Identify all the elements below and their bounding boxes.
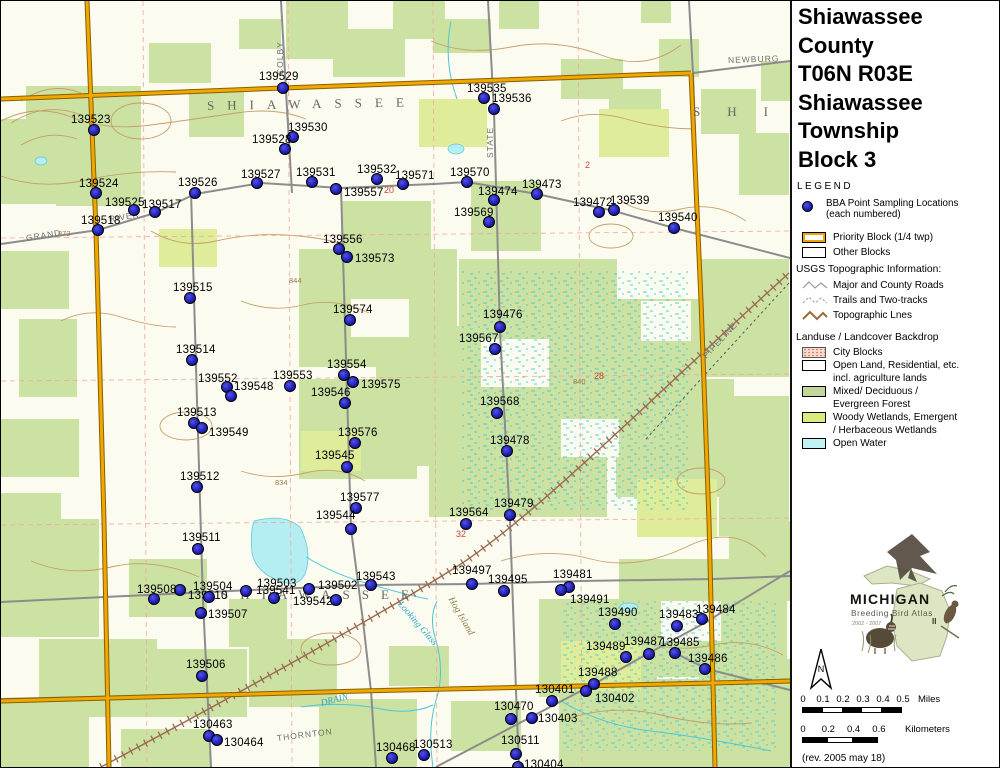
bba-point-dot bbox=[251, 177, 263, 189]
bba-point-label: 139507 bbox=[208, 609, 248, 621]
legend-item-water: Open Water bbox=[802, 437, 1000, 450]
bba-point-dot bbox=[192, 543, 204, 555]
logo-subtitle: Breeding Bird Atlas bbox=[851, 608, 933, 618]
bba-point-dot bbox=[330, 183, 342, 195]
other-block-swatch bbox=[802, 247, 826, 258]
bba-point-dot bbox=[699, 663, 711, 675]
north-arrow-icon: N bbox=[808, 645, 838, 695]
bba-point-dot bbox=[277, 82, 289, 94]
bba-point-label: 139473 bbox=[522, 179, 562, 191]
bba-point-label: 139497 bbox=[452, 565, 492, 577]
scalebar-segment bbox=[852, 738, 877, 742]
legend-block-items: Priority Block (1/4 twp)Other Blocks bbox=[802, 230, 1000, 260]
forest-swatch bbox=[802, 386, 826, 397]
legend-landuse-header: Landuse / Landcover Backdrop bbox=[796, 332, 939, 343]
bba-point-label: 139481 bbox=[553, 569, 593, 581]
bba-point-dot bbox=[189, 187, 201, 199]
bba-point-label: 139557 bbox=[344, 187, 384, 199]
bba-point-dot bbox=[620, 651, 632, 663]
bba-point-dot bbox=[349, 437, 361, 449]
scalebar-segment bbox=[862, 708, 882, 712]
legend-item-topo-line: Topographic Lnes bbox=[802, 308, 1000, 323]
bba-point-label: 139490 bbox=[598, 607, 638, 619]
map-document: SHIAWASSEESHISHIAWASSEENEWBURGSTATECOLBY… bbox=[0, 0, 1000, 768]
bba-point-dot bbox=[186, 354, 198, 366]
scalebar-tick: 0.4 bbox=[847, 724, 860, 735]
legend-item-forest: Mixed/ Deciduous / bbox=[802, 385, 1000, 398]
legend-item-label: Trails and Two-tracks bbox=[833, 295, 927, 306]
bba-point-dot bbox=[501, 445, 513, 457]
scalebar-tick: 0.2 bbox=[836, 694, 849, 705]
legend-item-label: City Blocks bbox=[833, 346, 882, 359]
bba-point-dot bbox=[284, 380, 296, 392]
bba-point-label: 139548 bbox=[234, 381, 274, 393]
scalebar-tick: 0.6 bbox=[872, 724, 885, 735]
legend-usgs-header: USGS Topographic Information: bbox=[796, 264, 941, 275]
scalebar-tick: 0.1 bbox=[816, 694, 829, 705]
bba-point-label: 139511 bbox=[182, 532, 221, 544]
bba-point-label: 130470 bbox=[494, 701, 534, 713]
scalebar-tick: 0 bbox=[800, 694, 805, 705]
legend-item-priority-block: Priority Block (1/4 twp) bbox=[802, 230, 1000, 245]
bba-point-dot bbox=[593, 206, 605, 218]
map-title-line: T06N R03E bbox=[798, 60, 923, 89]
legend-item-label-cont: / Herbaceous Wetlands bbox=[833, 424, 1000, 437]
bba-point-label: 130404 bbox=[524, 759, 564, 767]
legend-item-label: Woody Wetlands, Emergent bbox=[833, 411, 957, 424]
bba-point-label: 139549 bbox=[209, 427, 249, 439]
bba-point-icon bbox=[802, 201, 813, 212]
bba-point-label: 139506 bbox=[186, 659, 226, 671]
legend-item-other-block: Other Blocks bbox=[802, 245, 1000, 260]
scalebar-tick: 0.4 bbox=[876, 694, 889, 705]
bba-point-dot bbox=[669, 647, 681, 659]
bba-point-dot bbox=[489, 343, 501, 355]
water-swatch bbox=[802, 438, 826, 449]
bba-point-dot bbox=[184, 292, 196, 304]
bba-point-dot bbox=[494, 321, 506, 333]
map-canvas: SHIAWASSEESHISHIAWASSEENEWBURGSTATECOLBY… bbox=[1, 1, 790, 767]
bba-point-dot bbox=[580, 685, 592, 697]
info-panel: ShiawasseeCountyT06N R03EShiawasseeTowns… bbox=[790, 1, 1000, 767]
bba-point-label: 139491 bbox=[570, 594, 610, 606]
bba-point-dot bbox=[488, 103, 500, 115]
scalebar-tick: 0.3 bbox=[856, 694, 869, 705]
bba-point-dot bbox=[696, 613, 708, 625]
legend-item-wetland: Woody Wetlands, Emergent bbox=[802, 411, 1000, 424]
map-title-line: County bbox=[798, 32, 923, 61]
bba-point-dot bbox=[92, 224, 104, 236]
bba-point-label: 139577 bbox=[340, 492, 380, 504]
bba-point-label: 139540 bbox=[658, 212, 698, 224]
bba-point-dot bbox=[240, 585, 252, 597]
map-title-line: Shiawassee bbox=[798, 89, 923, 118]
bba-point-label: 139489 bbox=[586, 641, 626, 653]
city-swatch bbox=[802, 347, 826, 358]
bba-point-dot bbox=[526, 712, 538, 724]
bba-point-dot bbox=[555, 584, 567, 596]
bba-point-dot bbox=[365, 579, 377, 591]
bba-point-dot bbox=[671, 620, 683, 632]
bba-point-label: 139479 bbox=[494, 498, 534, 510]
bba-point-dot bbox=[461, 176, 473, 188]
wetland-swatch bbox=[802, 412, 826, 423]
legend-item-bba-points: BBA Point Sampling Locations (each numbe… bbox=[804, 198, 958, 220]
legend-item-road-line: Major and County Roads bbox=[802, 278, 1000, 293]
bba-point-dot bbox=[498, 585, 510, 597]
bba-point-dot bbox=[512, 761, 524, 767]
bba-point-label: 130403 bbox=[538, 713, 578, 725]
bba-point-dot bbox=[510, 748, 522, 760]
bba-point-dot bbox=[330, 594, 342, 606]
road-line-icon bbox=[802, 279, 828, 292]
bba-point-dot bbox=[643, 648, 655, 660]
legend-item-label-cont: incl. agriculture lands bbox=[833, 372, 1000, 385]
bba-point-label: 139488 bbox=[578, 667, 618, 679]
bba-point-label: 130464 bbox=[224, 737, 264, 749]
bba-point-label: 139544 bbox=[316, 510, 356, 522]
bba-point-dot bbox=[88, 124, 100, 136]
north-arrow-label: N bbox=[818, 664, 825, 674]
bba-point-label: 139502 bbox=[318, 580, 358, 592]
map-title-line: Shiawassee bbox=[798, 3, 923, 32]
legend-bba-line2: (each numbered) bbox=[826, 209, 958, 220]
bba-point-label: 139495 bbox=[488, 574, 528, 586]
bba-point-label: 139517 bbox=[142, 199, 182, 211]
legend-title: LEGEND bbox=[797, 181, 853, 192]
bba-point-label: 130511 bbox=[501, 735, 540, 747]
bba-point-dot bbox=[531, 188, 543, 200]
legend-item-label: Topographic Lnes bbox=[833, 310, 912, 321]
revision-note: (rev. 2005 may 18) bbox=[802, 753, 885, 764]
map-title: ShiawasseeCountyT06N R03EShiawasseeTowns… bbox=[798, 3, 923, 174]
scalebar-segment bbox=[803, 708, 823, 712]
scalebar-tick: 0.5 bbox=[896, 694, 909, 705]
bba-point-dot bbox=[491, 407, 503, 419]
bba-point-label: 130468 bbox=[376, 742, 416, 754]
bba-point-label: 139472 bbox=[573, 197, 613, 209]
bba-point-label: 139575 bbox=[361, 379, 401, 391]
bba-point-dot bbox=[195, 607, 207, 619]
bba-point-dot bbox=[341, 251, 353, 263]
logo-numeral: II bbox=[932, 617, 936, 626]
bba-point-dot bbox=[345, 523, 357, 535]
bba-point-label: 130401 bbox=[535, 684, 575, 696]
scalebar-tick: 0 bbox=[800, 724, 805, 735]
bba-point-dot bbox=[279, 143, 291, 155]
bba-point-dot bbox=[668, 222, 680, 234]
bba-point-dot bbox=[505, 713, 517, 725]
priority-block-swatch bbox=[802, 232, 826, 243]
bba-point-dot bbox=[344, 314, 356, 326]
bba-point-label: 139487 bbox=[624, 636, 664, 648]
legend-item-label: Major and County Roads bbox=[833, 280, 944, 291]
scalebar-segment bbox=[881, 708, 901, 712]
bba-point-dot bbox=[397, 178, 409, 190]
bba-point-label: 139485 bbox=[660, 637, 700, 649]
scalebar-tick: 0.2 bbox=[822, 724, 835, 735]
bba-point-dot bbox=[546, 695, 558, 707]
bba-point-label: 130463 bbox=[193, 719, 233, 731]
topo-line-icon bbox=[802, 309, 828, 322]
bba-point-dot bbox=[148, 593, 160, 605]
bba-point-dot bbox=[371, 173, 383, 185]
bba-point-label: 139542 bbox=[293, 596, 333, 608]
bba-point-dot bbox=[466, 578, 478, 590]
bba-point-dot bbox=[128, 204, 140, 216]
bba-point-label: 139568 bbox=[480, 396, 520, 408]
bba-point-dot bbox=[478, 92, 490, 104]
bba-point-dot bbox=[211, 734, 223, 746]
trail-line-icon bbox=[802, 294, 828, 307]
bba-point-dot bbox=[460, 518, 472, 530]
scalebar bbox=[802, 707, 902, 713]
bba-point-dot bbox=[339, 397, 351, 409]
scalebar-segment bbox=[803, 738, 828, 742]
bba-point-dot bbox=[196, 422, 208, 434]
map-title-line: Block 3 bbox=[798, 146, 923, 175]
bba-point-label: 139529 bbox=[259, 71, 299, 83]
bba-point-dot bbox=[268, 592, 280, 604]
legend-item-label: Priority Block (1/4 twp) bbox=[833, 232, 933, 243]
legend-bba-line1: BBA Point Sampling Locations bbox=[826, 198, 958, 209]
bba-point-dot bbox=[191, 481, 203, 493]
bba-point-dot bbox=[341, 461, 353, 473]
legend-item-city: City Blocks bbox=[802, 346, 1000, 359]
logo-years: 2002 - 2007 bbox=[852, 621, 881, 627]
legend-usgs-items: Major and County RoadsTrails and Two-tra… bbox=[802, 278, 1000, 323]
bba-point-dot bbox=[386, 752, 398, 764]
scalebar-segment bbox=[828, 738, 853, 742]
legend-item-label: Other Blocks bbox=[833, 247, 890, 258]
bba-point-label: 130402 bbox=[595, 693, 635, 705]
scalebar-unit: Miles bbox=[918, 694, 940, 705]
scalebar-segment bbox=[842, 708, 862, 712]
legend-item-open: Open Land, Residential, etc. bbox=[802, 359, 1000, 372]
bba-point-dot bbox=[196, 670, 208, 682]
bba-point-label: 139545 bbox=[315, 450, 355, 462]
legend-landuse-items: City BlocksOpen Land, Residential, etc.i… bbox=[802, 346, 1000, 450]
bba-point-dot bbox=[609, 618, 621, 630]
bba-point-label: 130513 bbox=[413, 739, 453, 751]
bba-point-label: 139536 bbox=[492, 93, 532, 105]
legend-item-label-cont: Evergreen Forest bbox=[833, 398, 1000, 411]
bba-point-dot bbox=[225, 390, 237, 402]
bba-point-dot bbox=[608, 204, 620, 216]
bba-point-dot bbox=[149, 206, 161, 218]
bba-point-label: 139476 bbox=[483, 309, 523, 321]
bba-point-dot bbox=[418, 749, 430, 761]
scalebar-unit: Kilometers bbox=[905, 724, 950, 735]
bba-point-label: 139514 bbox=[176, 344, 216, 356]
bba-point-dot bbox=[90, 187, 102, 199]
scalebar-segment bbox=[823, 708, 843, 712]
quail-icon bbox=[862, 614, 896, 654]
bba-point-label: 139564 bbox=[449, 507, 489, 519]
sampling-points-layer: 1395291395231395301395281395271395311395… bbox=[1, 1, 790, 767]
bba-point-dot bbox=[303, 583, 315, 595]
legend-item-label: Open Land, Residential, etc. bbox=[833, 359, 959, 372]
bba-point-label: 139573 bbox=[355, 253, 395, 265]
bba-point-dot bbox=[504, 509, 516, 521]
open-swatch bbox=[802, 360, 826, 371]
legend-item-trail-line: Trails and Two-tracks bbox=[802, 293, 1000, 308]
scalebar bbox=[802, 737, 878, 743]
bba-point-label: 139483 bbox=[659, 609, 699, 621]
bba-point-dot bbox=[203, 591, 215, 603]
map-title-line: Township bbox=[798, 117, 923, 146]
bba-point-dot bbox=[306, 176, 318, 188]
bba-point-dot bbox=[483, 216, 495, 228]
legend-item-label: Open Water bbox=[833, 437, 887, 450]
logo-name: MICHIGAN bbox=[850, 591, 930, 607]
bba-point-dot bbox=[488, 194, 500, 206]
legend-item-label: Mixed/ Deciduous / bbox=[833, 385, 918, 398]
